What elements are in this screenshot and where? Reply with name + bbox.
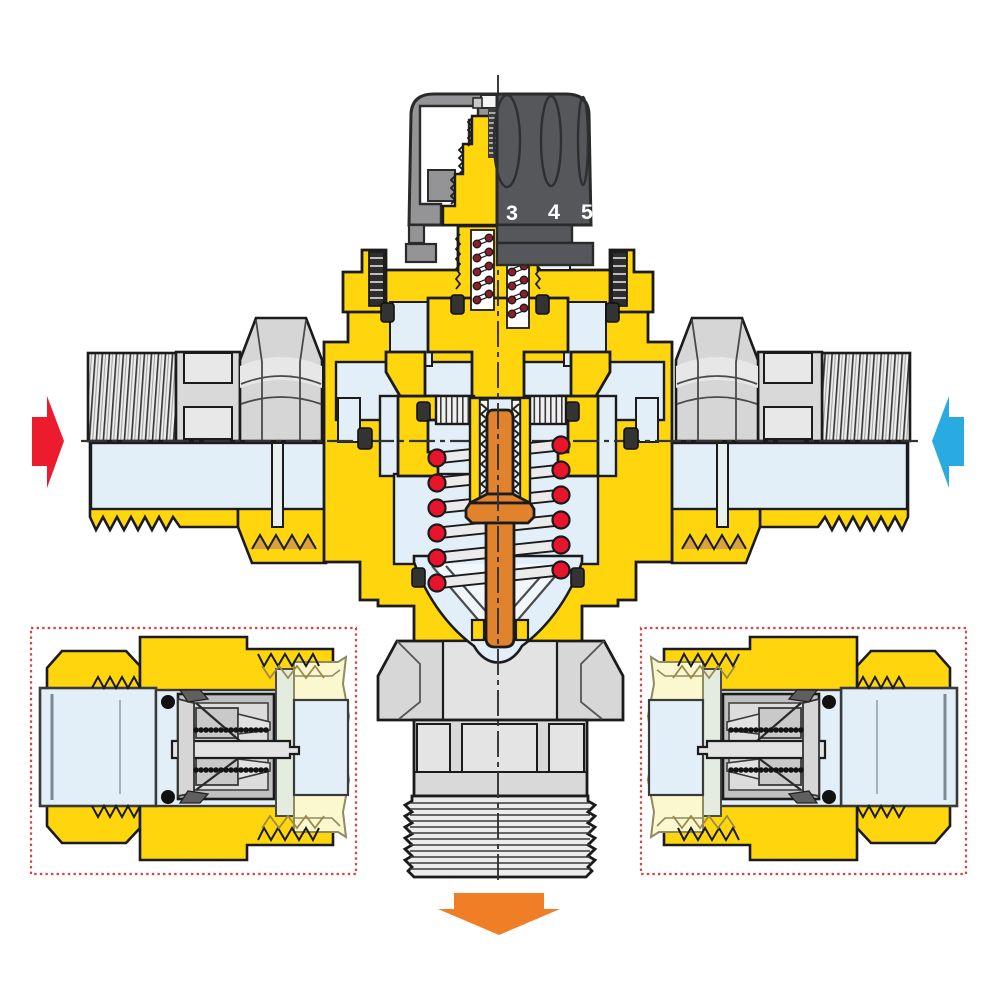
svg-text:4: 4 <box>548 200 560 224</box>
svg-text:5: 5 <box>581 200 593 224</box>
svg-text:3: 3 <box>506 201 518 225</box>
